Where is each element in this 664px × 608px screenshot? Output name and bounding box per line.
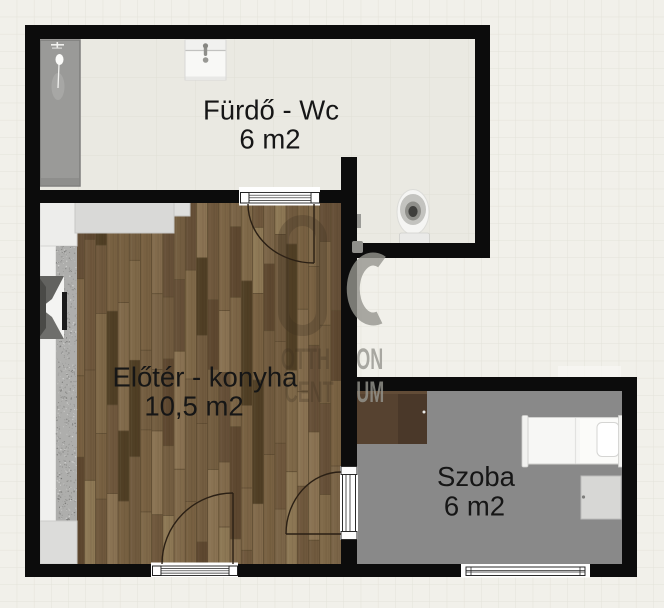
svg-text:6 m2: 6 m2 bbox=[239, 124, 300, 155]
svg-text:10,5 m2: 10,5 m2 bbox=[144, 391, 243, 422]
svg-text:ON: ON bbox=[356, 344, 383, 377]
svg-text:UM: UM bbox=[356, 377, 384, 410]
svg-text:6 m2: 6 m2 bbox=[444, 491, 505, 522]
svg-text:Előtér - konyha: Előtér - konyha bbox=[113, 362, 299, 393]
svg-text:Fürdő - Wc: Fürdő - Wc bbox=[203, 95, 339, 126]
svg-text:Szoba: Szoba bbox=[437, 461, 516, 492]
